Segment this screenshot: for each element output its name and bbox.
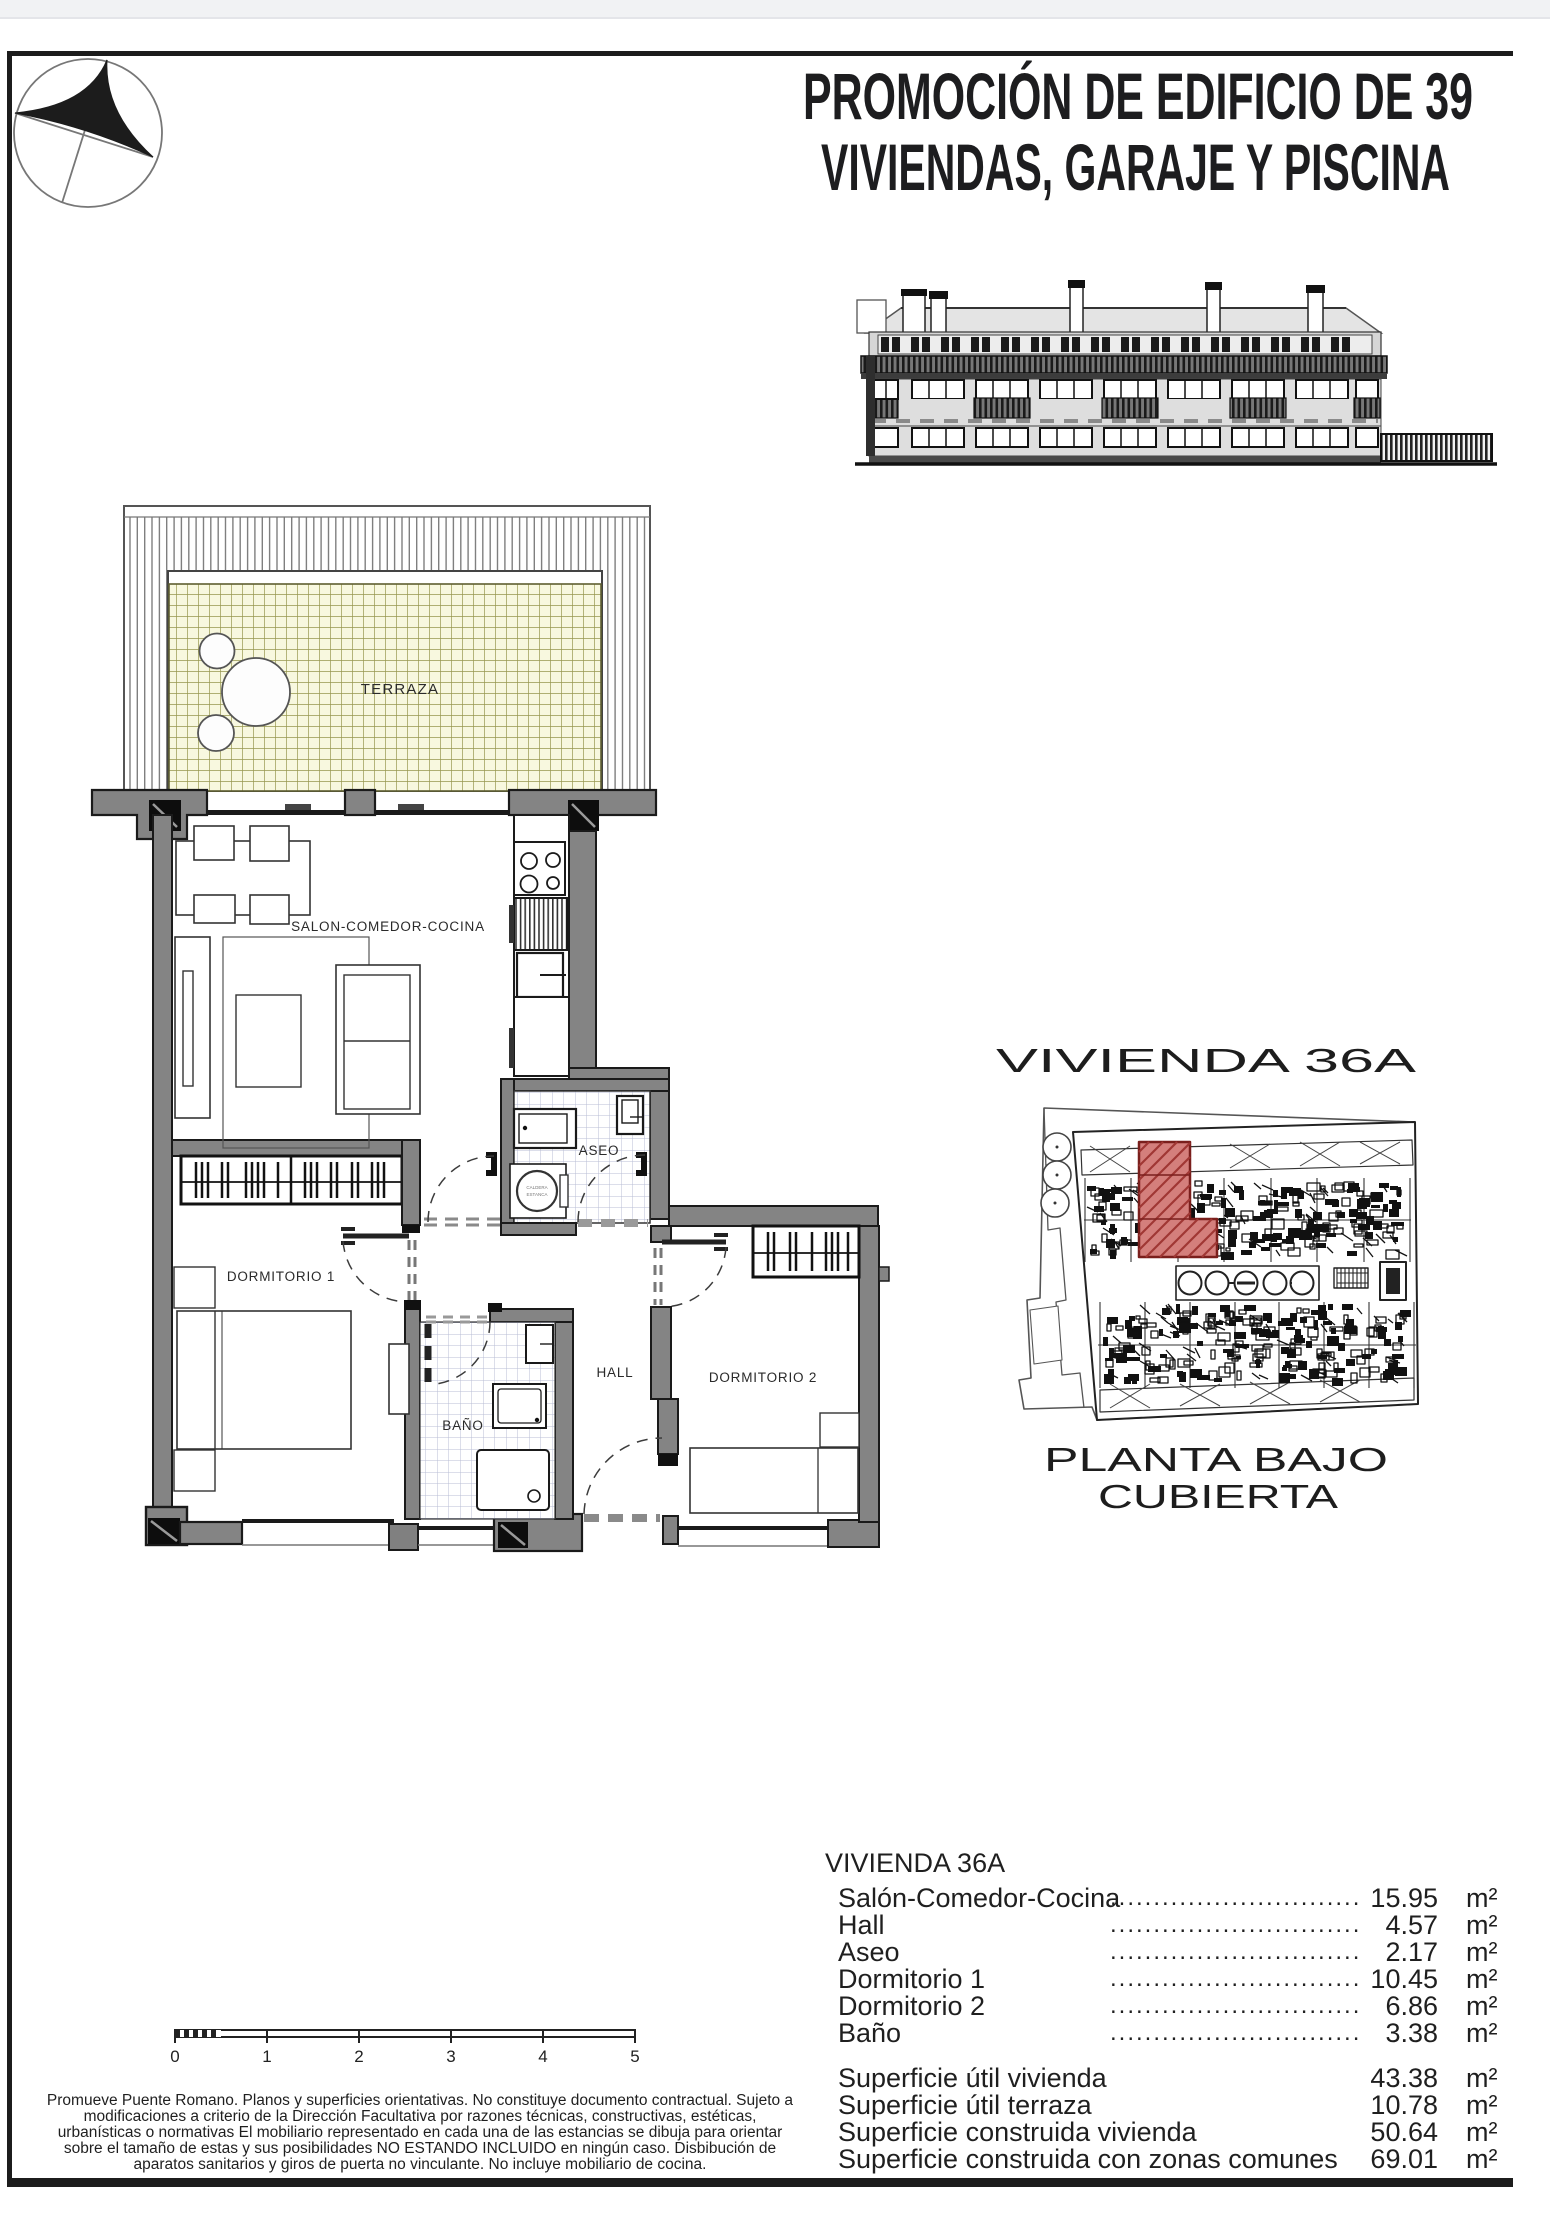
svg-text:69.01: 69.01	[1370, 2144, 1438, 2174]
svg-text:Superficie construida vivienda: Superficie construida vivienda	[838, 2117, 1198, 2147]
svg-text:modificaciones a criterio de l: modificaciones a criterio de la Direcció…	[84, 2108, 757, 2125]
svg-text:sobre el tamaño de estas y sus: sobre el tamaño de estas y sus posibilid…	[64, 2140, 776, 2157]
svg-text:PLANTA BAJO: PLANTA BAJO	[1044, 1441, 1388, 1478]
svg-text:.............................: .............................	[1110, 1938, 1361, 1965]
svg-text:3: 3	[446, 2047, 455, 2066]
svg-text:2.17: 2.17	[1385, 1937, 1438, 1967]
svg-text:DORMITORIO 2: DORMITORIO 2	[709, 1370, 817, 1385]
svg-text:4: 4	[538, 2047, 547, 2066]
svg-text:4.57: 4.57	[1385, 1910, 1438, 1940]
svg-text:Superficie construida con zona: Superficie construida con zonas comunes	[838, 2144, 1338, 2174]
svg-text:m²: m²	[1466, 2117, 1497, 2147]
svg-text:.............................: .............................	[1110, 1992, 1361, 2019]
svg-text:m²: m²	[1466, 2090, 1497, 2120]
svg-text:CALDERA: CALDERA	[526, 1185, 547, 1190]
svg-text:.............................: .............................	[1110, 2019, 1361, 2046]
svg-text:Superficie útil terraza: Superficie útil terraza	[838, 2090, 1093, 2120]
svg-text:CUBIERTA: CUBIERTA	[1098, 1478, 1338, 1515]
svg-text:PROMOCIÓN DE EDIFICIO DE 39: PROMOCIÓN DE EDIFICIO DE 39	[803, 59, 1473, 133]
svg-text:0: 0	[170, 2047, 179, 2066]
svg-text:ESTANCA: ESTANCA	[527, 1192, 548, 1197]
svg-text:m²: m²	[1466, 1964, 1497, 1994]
svg-text:Hall: Hall	[838, 1910, 885, 1940]
svg-text:.............................: .............................	[1110, 1884, 1361, 1911]
svg-text:aparatos sanitarios y giros de: aparatos sanitarios y giros de puerta no…	[134, 2156, 707, 2173]
svg-text:ASEO: ASEO	[579, 1143, 620, 1158]
svg-text:SALON-COMEDOR-COCINA: SALON-COMEDOR-COCINA	[291, 919, 485, 934]
svg-text:10.78: 10.78	[1370, 2090, 1438, 2120]
svg-text:m²: m²	[1466, 1937, 1497, 1967]
svg-text:VIVIENDA 36A: VIVIENDA 36A	[825, 1848, 1005, 1878]
svg-text:m²: m²	[1466, 1991, 1497, 2021]
svg-text:Promueve Puente Romano. Planos: Promueve Puente Romano. Planos y superfi…	[47, 2092, 794, 2109]
svg-text:VIVIENDAS, GARAJE Y PISCINA: VIVIENDAS, GARAJE Y PISCINA	[821, 130, 1450, 204]
svg-text:DORMITORIO 1: DORMITORIO 1	[227, 1269, 335, 1284]
svg-text:50.64: 50.64	[1370, 2117, 1438, 2147]
svg-text:m²: m²	[1466, 2144, 1497, 2174]
svg-text:6.86: 6.86	[1385, 1991, 1438, 2021]
svg-text:5: 5	[630, 2047, 639, 2066]
svg-text:.............................: .............................	[1110, 1965, 1361, 1992]
svg-text:TERRAZA: TERRAZA	[361, 681, 439, 698]
svg-text:Baño: Baño	[838, 2018, 901, 2048]
svg-text:HALL: HALL	[597, 1365, 634, 1380]
svg-text:m²: m²	[1466, 1883, 1497, 1913]
svg-text:m²: m²	[1466, 2063, 1497, 2093]
svg-text:1: 1	[262, 2047, 271, 2066]
svg-text:Salón-Comedor-Cocina: Salón-Comedor-Cocina	[838, 1883, 1121, 1913]
svg-text:Aseo: Aseo	[838, 1937, 900, 1967]
svg-text:m²: m²	[1466, 1910, 1497, 1940]
svg-text:43.38: 43.38	[1370, 2063, 1438, 2093]
svg-text:.............................: .............................	[1110, 1911, 1361, 1938]
svg-text:2: 2	[354, 2047, 363, 2066]
svg-text:15.95: 15.95	[1370, 1883, 1438, 1913]
svg-text:3.38: 3.38	[1385, 2018, 1438, 2048]
svg-text:urbanísticas o normativas El m: urbanísticas o normativas El mobiliario …	[58, 2124, 783, 2141]
svg-text:10.45: 10.45	[1370, 1964, 1438, 1994]
svg-text:VIVIENDA 36A: VIVIENDA 36A	[996, 1042, 1416, 1079]
svg-text:BAÑO: BAÑO	[442, 1418, 483, 1433]
svg-text:Dormitorio 2: Dormitorio 2	[838, 1991, 985, 2021]
svg-text:Superficie útil vivienda: Superficie útil vivienda	[838, 2063, 1108, 2093]
svg-text:Dormitorio 1: Dormitorio 1	[838, 1964, 985, 1994]
svg-text:m²: m²	[1466, 2018, 1497, 2048]
